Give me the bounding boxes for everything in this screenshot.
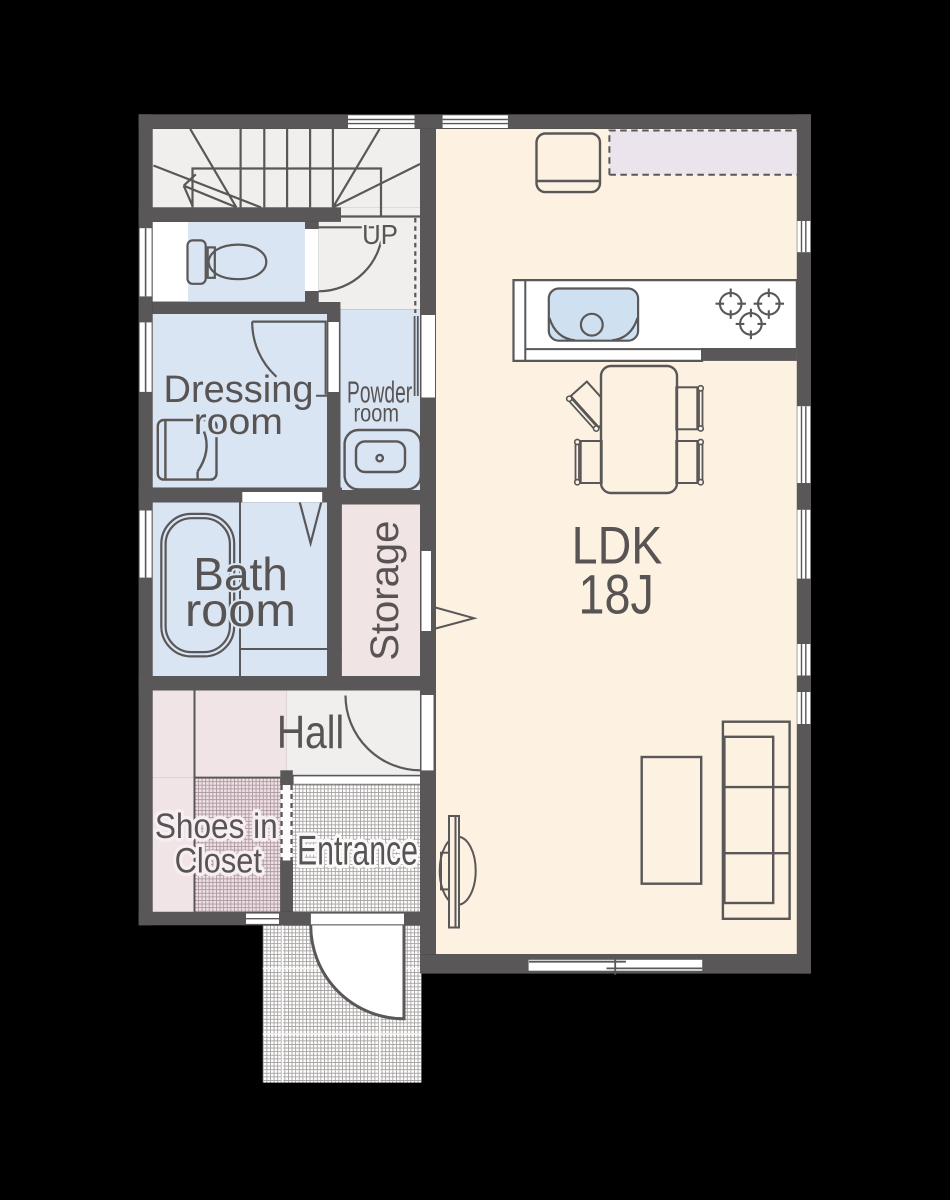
svg-text:Entrance: Entrance bbox=[297, 827, 418, 874]
svg-text:Closet: Closet bbox=[175, 841, 262, 880]
svg-text:room: room bbox=[185, 585, 296, 636]
svg-text:Hall: Hall bbox=[277, 707, 344, 759]
svg-text:18J: 18J bbox=[579, 562, 654, 625]
svg-text:UP: UP bbox=[362, 219, 398, 250]
svg-text:room: room bbox=[194, 401, 283, 443]
svg-text:Storage: Storage bbox=[363, 521, 407, 661]
svg-text:room: room bbox=[354, 399, 400, 427]
